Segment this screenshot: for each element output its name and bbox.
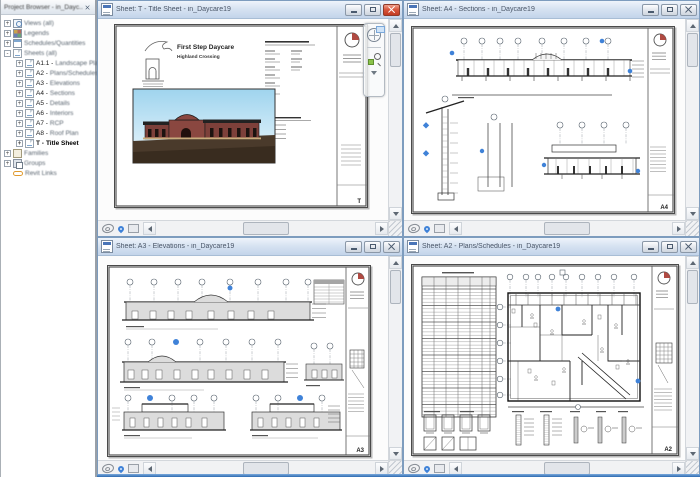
sheet-view-a4[interactable]: A4 xyxy=(404,19,699,236)
vertical-scrollbar[interactable] xyxy=(685,256,699,460)
elevation-west xyxy=(120,339,298,390)
expand-icon[interactable]: + xyxy=(4,40,11,47)
chevron-down-icon[interactable] xyxy=(371,71,377,75)
window-title: Sheet: A4 - Sections - in_Daycare19 xyxy=(422,6,640,13)
steering-wheel-icon[interactable] xyxy=(101,463,115,474)
sidebar-item-sheet-a3[interactable]: +A3 -Elevations xyxy=(1,78,95,88)
sidebar-item-sheet-a11[interactable]: +A1.1 -Landscape Plan xyxy=(1,58,95,68)
window-title-sheet: Sheet: T - Title Sheet - in_Daycare19 xyxy=(97,0,403,237)
rendering-3d-view xyxy=(133,89,275,163)
project-directory-block xyxy=(265,41,315,94)
scroll-left-button[interactable] xyxy=(449,222,462,235)
window-titlebar[interactable]: Sheet: A3 - Elevations - in_Daycare19 xyxy=(98,238,402,256)
expand-icon[interactable]: + xyxy=(16,60,23,67)
wall-type-details xyxy=(512,411,642,445)
project-name: First Step Daycare xyxy=(177,44,234,51)
resize-grip[interactable] xyxy=(388,220,402,236)
close-button[interactable] xyxy=(680,241,697,253)
a2-sheet-paper[interactable]: A2 xyxy=(411,264,679,456)
close-icon xyxy=(684,242,693,251)
close-button[interactable] xyxy=(680,4,697,16)
steering-wheel-icon[interactable] xyxy=(367,28,381,42)
sidebar-item-groups[interactable]: +Groups xyxy=(1,158,95,168)
scroll-down-button[interactable] xyxy=(389,447,402,460)
steering-wheel-icon[interactable] xyxy=(101,223,115,234)
sidebar-item-schedules[interactable]: +Schedules/Quantities xyxy=(1,38,95,48)
expand-icon[interactable]: + xyxy=(16,70,23,77)
window-titlebar[interactable]: Sheet: T - Title Sheet - in_Daycare19 xyxy=(98,1,402,19)
elevation-south xyxy=(112,395,226,438)
window-a4-sections: Sheet: A4 - Sections - in_Daycare19 xyxy=(403,0,700,237)
link-icon xyxy=(13,171,23,176)
horizontal-scrollbar[interactable] xyxy=(404,220,685,236)
sheet-number: T xyxy=(357,199,361,205)
crop-region-icon[interactable] xyxy=(434,224,445,233)
sheet-view-t[interactable]: First Step Daycare Highland Crossing xyxy=(98,19,402,236)
minimize-button[interactable] xyxy=(642,241,659,253)
sheets-icon xyxy=(13,49,22,58)
window-title: Sheet: T - Title Sheet - in_Daycare19 xyxy=(116,6,343,13)
restore-button[interactable] xyxy=(364,4,381,16)
horizontal-scrollbar[interactable] xyxy=(98,220,388,236)
restore-button[interactable] xyxy=(364,241,381,253)
vertical-scroll-thumb[interactable] xyxy=(687,270,698,304)
sheet-view-a2[interactable]: A2 xyxy=(404,256,699,476)
sheet-icon xyxy=(25,99,34,108)
title-sheet-paper[interactable]: First Step Daycare Highland Crossing xyxy=(114,24,368,208)
expand-icon[interactable]: + xyxy=(16,80,23,87)
sheet-doc-icon xyxy=(407,3,419,16)
sheet-view-a3[interactable]: A3 xyxy=(98,256,402,476)
expand-icon[interactable]: + xyxy=(4,160,11,167)
project-browser-panel: Project Browser - in_Dayc... +Views (all… xyxy=(0,0,97,477)
sheet-number: A4 xyxy=(660,205,668,211)
window-titlebar[interactable]: Sheet: A4 - Sections - in_Daycare19 xyxy=(404,1,699,19)
crop-region-icon[interactable] xyxy=(434,464,445,473)
collapse-icon[interactable]: - xyxy=(4,50,11,57)
detail-2 xyxy=(478,114,512,191)
sheet-icon xyxy=(25,79,34,88)
floor-plan xyxy=(497,270,644,410)
sidebar-item-sheets[interactable]: -Sheets (all) xyxy=(1,48,95,58)
elevation-east xyxy=(250,395,342,438)
resize-grip[interactable] xyxy=(685,220,699,236)
vertical-scroll-thumb[interactable] xyxy=(390,33,401,67)
scroll-up-button[interactable] xyxy=(389,256,402,269)
project-browser-title: Project Browser - in_Dayc... xyxy=(4,4,83,11)
window-titlebar[interactable]: Sheet: A2 - Plans/Schedules - in_Daycare… xyxy=(404,238,699,256)
section-1 xyxy=(450,38,644,81)
sidebar-item-sheet-a5[interactable]: +A5 -Details xyxy=(1,98,95,108)
expand-icon[interactable]: + xyxy=(16,120,23,127)
sheet-number: A3 xyxy=(356,448,364,454)
company-logo-sketch xyxy=(142,41,172,86)
sidebar-item-sheet-a8[interactable]: +A8 -Roof Plan xyxy=(1,128,95,138)
restore-button[interactable] xyxy=(661,4,678,16)
expand-icon[interactable]: + xyxy=(16,100,23,107)
sheet-doc-icon xyxy=(407,240,419,253)
pushpin-icon[interactable] xyxy=(423,464,431,472)
scroll-down-button[interactable] xyxy=(686,207,699,220)
minimize-button[interactable] xyxy=(345,4,362,16)
expand-icon[interactable]: + xyxy=(4,30,11,37)
horizontal-scroll-thumb[interactable] xyxy=(243,222,289,235)
sidebar-item-revit-links[interactable]: Revit Links xyxy=(1,168,95,178)
horizontal-scroll-thumb[interactable] xyxy=(544,222,590,235)
families-icon xyxy=(13,149,22,158)
sidebar-item-sheet-t[interactable]: +T -Title Sheet xyxy=(1,138,95,148)
revit-mdi-workspace: Project Browser - in_Dayc... +Views (all… xyxy=(0,0,700,477)
sidebar-item-legends[interactable]: +Legends xyxy=(1,28,95,38)
vertical-scrollbar[interactable] xyxy=(388,256,402,460)
close-icon xyxy=(387,242,396,251)
section-2 xyxy=(542,122,640,179)
close-button[interactable] xyxy=(383,241,400,253)
pushpin-icon[interactable] xyxy=(117,464,125,472)
sidebar-item-sheet-a6[interactable]: +A6 -Interiors xyxy=(1,108,95,118)
a3-sheet-paper[interactable]: A3 xyxy=(107,265,371,457)
close-icon xyxy=(387,5,396,14)
sheet-icon xyxy=(25,119,34,128)
a4-sheet-paper[interactable]: A4 xyxy=(411,26,675,214)
scroll-up-button[interactable] xyxy=(389,19,402,32)
scroll-down-button[interactable] xyxy=(389,207,402,220)
project-browser-header[interactable]: Project Browser - in_Dayc... xyxy=(1,0,95,15)
expand-icon[interactable]: + xyxy=(16,140,23,147)
wall-section-detail xyxy=(423,96,464,200)
scroll-right-button[interactable] xyxy=(672,222,685,235)
expand-icon[interactable]: + xyxy=(16,110,23,117)
sheet-icon xyxy=(25,89,34,98)
steering-wheel-icon[interactable] xyxy=(407,463,421,474)
room-schedule-table xyxy=(422,272,496,417)
sheet-doc-icon xyxy=(101,240,113,253)
sidebar-item-families[interactable]: +Families xyxy=(1,148,95,158)
expand-icon[interactable]: + xyxy=(16,130,23,137)
browser-tree: +Views (all) +Legends +Schedules/Quantit… xyxy=(1,15,95,178)
window-a2-plans: Sheet: A2 - Plans/Schedules - in_Daycare… xyxy=(403,237,700,477)
project-subtitle: Highland Crossing xyxy=(177,54,220,60)
vertical-scroll-thumb[interactable] xyxy=(687,33,698,67)
steering-wheel-icon[interactable] xyxy=(407,223,421,234)
restore-button[interactable] xyxy=(661,241,678,253)
scroll-right-button[interactable] xyxy=(375,222,388,235)
sidebar-item-sheet-a4[interactable]: +A4 -Sections xyxy=(1,88,95,98)
scroll-up-button[interactable] xyxy=(686,256,699,269)
sheet-icon xyxy=(25,139,34,148)
close-icon xyxy=(684,5,693,14)
sheet-icon xyxy=(25,129,34,138)
sidebar-item-sheet-a2[interactable]: +A2 -Plans/Schedules xyxy=(1,68,95,78)
sidebar-item-views[interactable]: +Views (all) xyxy=(1,18,95,28)
vertical-scrollbar[interactable] xyxy=(685,19,699,220)
window-a3-elevations: Sheet: A3 - Elevations - in_Daycare19 xyxy=(97,237,403,477)
groups-icon xyxy=(13,159,22,168)
close-button[interactable] xyxy=(383,4,400,16)
sheet-icon xyxy=(25,109,34,118)
close-icon[interactable] xyxy=(85,4,90,9)
scroll-up-button[interactable] xyxy=(686,19,699,32)
titleblock-logo xyxy=(345,33,359,47)
crop-region-icon[interactable] xyxy=(128,224,139,233)
pushpin-icon[interactable] xyxy=(423,224,431,232)
sheet-doc-icon xyxy=(101,3,113,16)
vertical-scroll-thumb[interactable] xyxy=(390,270,401,304)
elevation-north xyxy=(122,279,344,329)
views-icon xyxy=(13,19,22,28)
vertical-scrollbar[interactable] xyxy=(388,19,402,220)
expand-icon[interactable]: + xyxy=(16,90,23,97)
sheet-icon xyxy=(25,59,34,68)
schedule-icon xyxy=(13,39,22,48)
legends-icon xyxy=(13,29,22,38)
wheel-2d-badge xyxy=(376,26,385,33)
expand-icon[interactable]: + xyxy=(4,20,11,27)
navigation-bar[interactable] xyxy=(363,23,385,97)
zoom-icon[interactable] xyxy=(368,53,381,66)
window-title: Sheet: A2 - Plans/Schedules - in_Daycare… xyxy=(422,243,640,250)
minimize-button[interactable] xyxy=(345,241,362,253)
minimize-button[interactable] xyxy=(642,4,659,16)
sidebar-item-sheet-a7[interactable]: +A7 -RCP xyxy=(1,118,95,128)
scroll-left-button[interactable] xyxy=(143,222,156,235)
elevation-small xyxy=(304,343,344,386)
expand-icon[interactable]: + xyxy=(4,150,11,157)
sheet-icon xyxy=(25,69,34,78)
pushpin-icon[interactable] xyxy=(117,224,125,232)
sheet-number: A2 xyxy=(664,447,672,453)
scroll-down-button[interactable] xyxy=(686,447,699,460)
crop-region-icon[interactable] xyxy=(128,464,139,473)
window-title: Sheet: A3 - Elevations - in_Daycare19 xyxy=(116,243,343,250)
